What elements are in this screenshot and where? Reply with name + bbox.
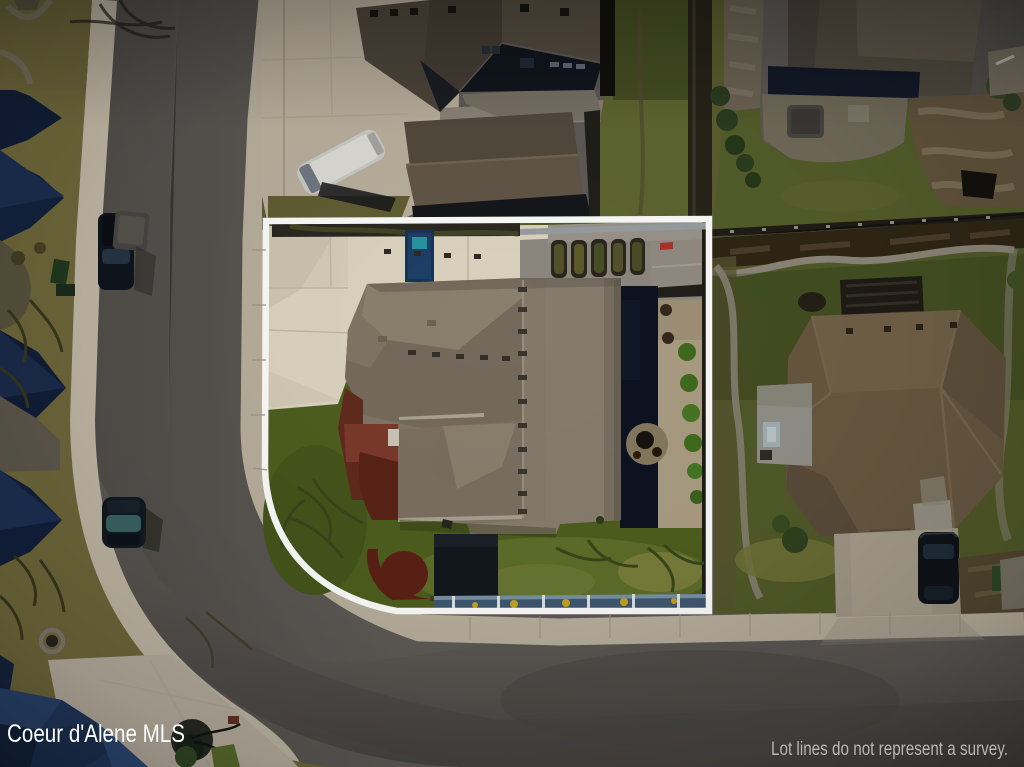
svg-text:Coeur d'Alene MLS: Coeur d'Alene MLS bbox=[7, 720, 185, 748]
svg-text:Lot lines do not represent a s: Lot lines do not represent a survey. bbox=[771, 739, 1008, 760]
